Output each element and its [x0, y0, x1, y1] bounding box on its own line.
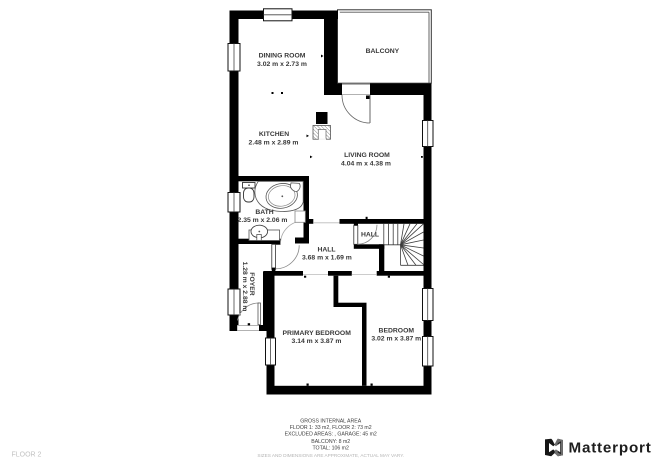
svg-text:3.68 m x 1.69 m: 3.68 m x 1.69 m	[302, 254, 352, 261]
svg-text:PRIMARY BEDROOM: PRIMARY BEDROOM	[283, 330, 352, 337]
svg-text:1.28 m x 2.88 m: 1.28 m x 2.88 m	[241, 262, 248, 312]
svg-text:TOTAL: 106 m2: TOTAL: 106 m2	[312, 446, 349, 452]
svg-text:2.48 m x 2.89 m: 2.48 m x 2.89 m	[249, 140, 299, 147]
svg-text:SIZES AND DIMENSIONS ARE APPRO: SIZES AND DIMENSIONS ARE APPROXIMATE, AC…	[257, 453, 404, 458]
svg-text:4.04 m x 4.38 m: 4.04 m x 4.38 m	[341, 161, 391, 168]
svg-text:FOYER: FOYER	[248, 272, 255, 296]
svg-text:BALCONY: 8 m2: BALCONY: 8 m2	[311, 439, 350, 445]
svg-text:HALL: HALL	[361, 232, 379, 239]
svg-text:DINING ROOM: DINING ROOM	[259, 53, 306, 60]
svg-text:Matterport: Matterport	[569, 440, 652, 457]
svg-text:GROSS INTERNAL AREA: GROSS INTERNAL AREA	[300, 418, 361, 424]
svg-text:3.14 m x 3.87 m: 3.14 m x 3.87 m	[292, 338, 342, 345]
svg-text:BALCONY: BALCONY	[366, 48, 400, 55]
svg-text:BATH: BATH	[255, 209, 273, 216]
svg-text:BEDROOM: BEDROOM	[379, 327, 415, 334]
svg-text:EXCLUDED AREAS: , GARAGE: 45 m: EXCLUDED AREAS: , GARAGE: 45 m2	[285, 432, 377, 438]
svg-text:FLOOR 1: 33 m2, FLOOR 2: 73 m2: FLOOR 1: 33 m2, FLOOR 2: 73 m2	[290, 425, 372, 431]
svg-text:2.35 m x 2.06 m: 2.35 m x 2.06 m	[238, 217, 288, 224]
svg-text:FLOOR 2: FLOOR 2	[12, 452, 42, 459]
svg-text:HALL: HALL	[317, 246, 335, 253]
svg-text:3.02 m x 3.87 m: 3.02 m x 3.87 m	[371, 335, 421, 342]
svg-text:KITCHEN: KITCHEN	[259, 131, 289, 138]
svg-text:3.02 m x 2.73 m: 3.02 m x 2.73 m	[257, 61, 307, 68]
svg-text:LIVING ROOM: LIVING ROOM	[344, 152, 390, 159]
